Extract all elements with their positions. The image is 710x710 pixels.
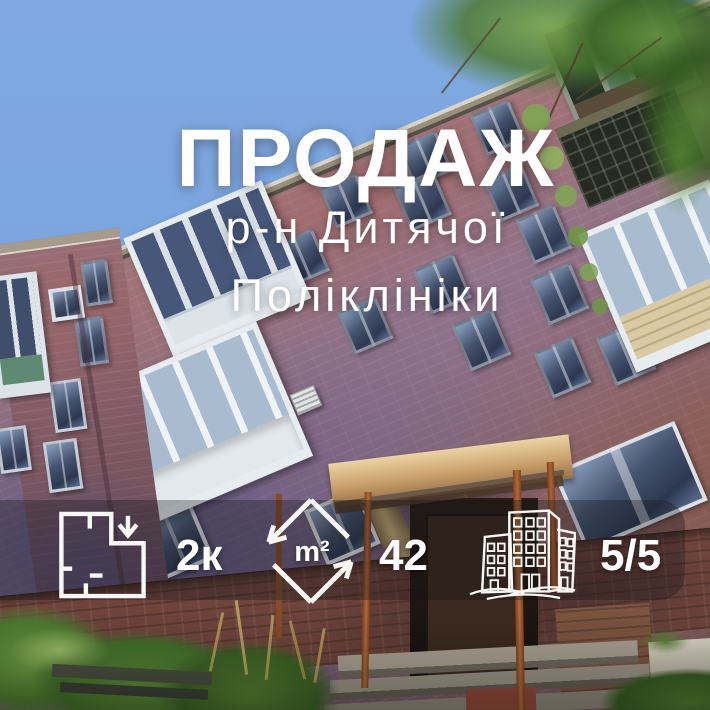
floors-value: 5/5: [600, 531, 661, 581]
listing-title: ПРОДАЖ: [11, 112, 710, 206]
apartment-buildings-icon: [468, 500, 576, 604]
rooms-value: 2к: [176, 531, 223, 581]
area-unit-label: m²: [284, 536, 340, 569]
listing-subtitle-line1: р-н Дитячої: [12, 202, 710, 254]
area-value: 42: [379, 531, 428, 581]
floor-plan-entry-icon: [57, 510, 148, 600]
listing-photo-card: ПРОДАЖ р-н Дитячої Поліклініки 2к m² 42: [0, 0, 710, 710]
listing-subtitle-line2: Поліклініки: [12, 270, 710, 322]
